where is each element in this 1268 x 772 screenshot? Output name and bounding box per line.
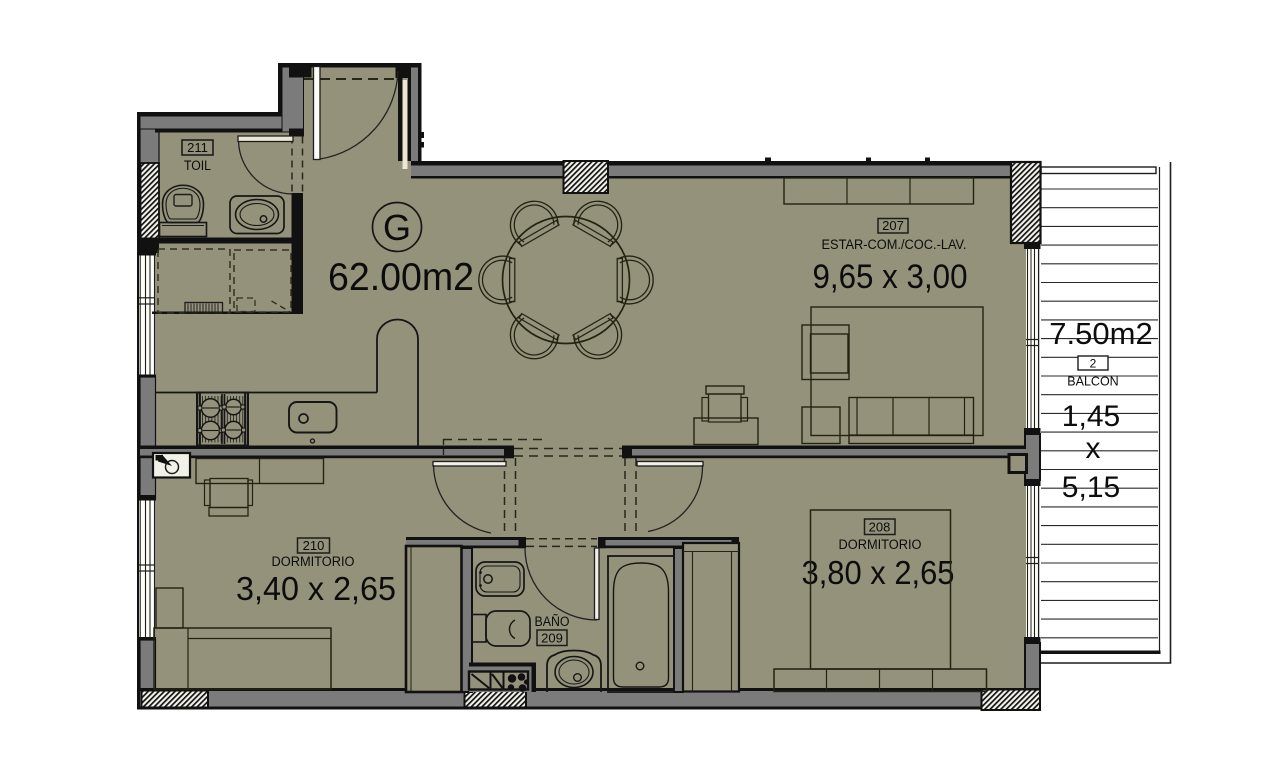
svg-text:BAÑO: BAÑO (535, 614, 570, 629)
svg-text:x: x (1086, 432, 1101, 465)
svg-text:209: 209 (541, 631, 563, 646)
svg-text:9,65 x 3,00: 9,65 x 3,00 (813, 258, 968, 296)
svg-text:210: 210 (303, 538, 325, 553)
svg-text:BALCON: BALCON (1067, 375, 1118, 389)
svg-text:211: 211 (187, 140, 208, 155)
svg-text:3,40 x 2,65: 3,40 x 2,65 (236, 570, 396, 607)
svg-text:7.50m2: 7.50m2 (1049, 316, 1152, 351)
svg-text:207: 207 (882, 218, 904, 233)
svg-text:DORMITORIO: DORMITORIO (272, 554, 355, 569)
svg-text:62.00m2: 62.00m2 (328, 256, 474, 299)
svg-text:TOIL: TOIL (184, 158, 211, 173)
svg-text:208: 208 (869, 520, 891, 535)
svg-text:ESTAR-COM./COC.-LAV.: ESTAR-COM./COC.-LAV. (822, 237, 967, 252)
svg-text:1,45: 1,45 (1062, 400, 1120, 433)
svg-text:G: G (383, 207, 411, 248)
svg-text:2: 2 (1090, 357, 1097, 371)
svg-text:DORMITORIO: DORMITORIO (839, 537, 922, 552)
svg-text:5,15: 5,15 (1062, 471, 1120, 504)
svg-text:3,80 x 2,65: 3,80 x 2,65 (802, 554, 955, 591)
